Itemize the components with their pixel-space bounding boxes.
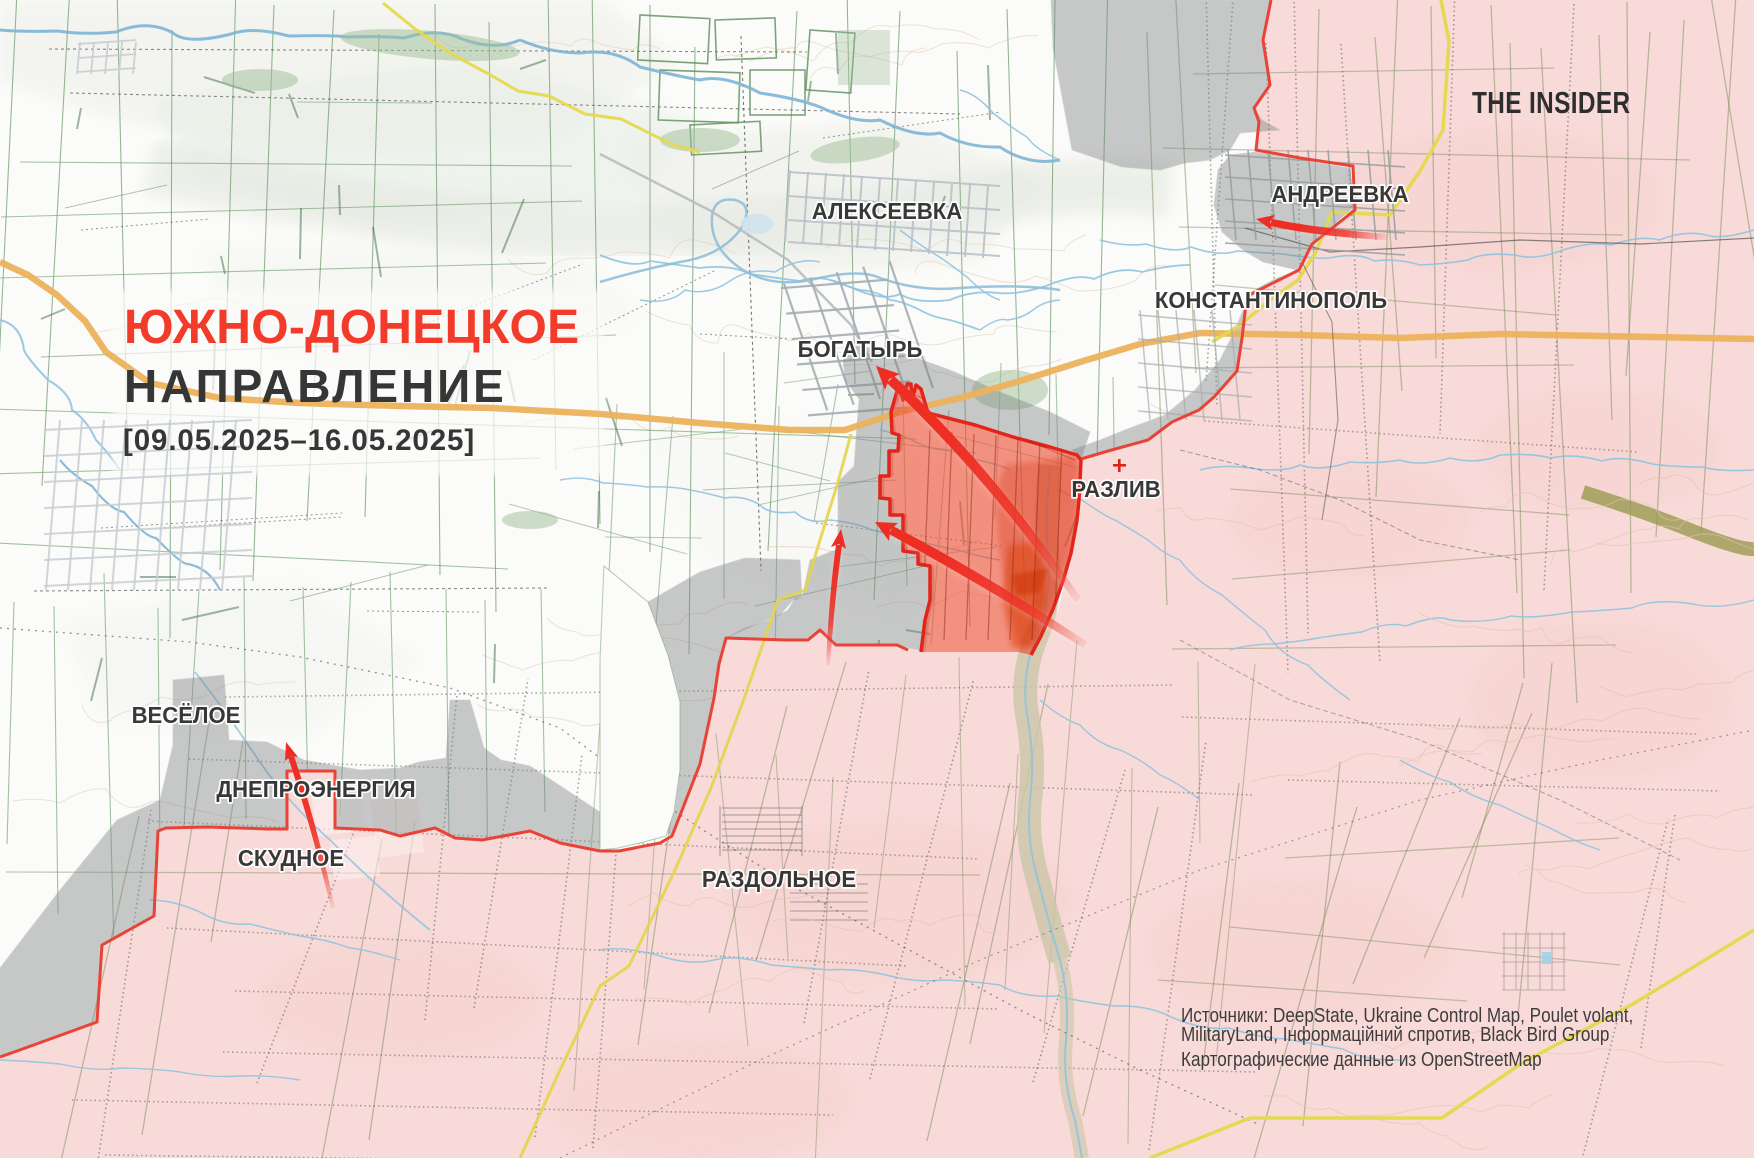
- svg-text:СКУДНОЕ: СКУДНОЕ: [238, 844, 344, 871]
- svg-text:КОНСТАНТИНОПОЛЬ: КОНСТАНТИНОПОЛЬ: [1155, 286, 1387, 313]
- svg-text:АНДРЕЕВКА: АНДРЕЕВКА: [1271, 180, 1408, 207]
- svg-text:ДНЕПРОЭНЕРГИЯ: ДНЕПРОЭНЕРГИЯ: [216, 775, 415, 802]
- svg-text:РАЗЛИВ: РАЗЛИВ: [1071, 475, 1160, 502]
- svg-text:АЛЕКСЕЕВКА: АЛЕКСЕЕВКА: [812, 197, 962, 224]
- svg-text:РАЗДОЛЬНОЕ: РАЗДОЛЬНОЕ: [702, 865, 856, 892]
- svg-text:БОГАТЫРЬ: БОГАТЫРЬ: [798, 335, 923, 362]
- svg-text:ВЕСЁЛОЕ: ВЕСЁЛОЕ: [132, 701, 241, 728]
